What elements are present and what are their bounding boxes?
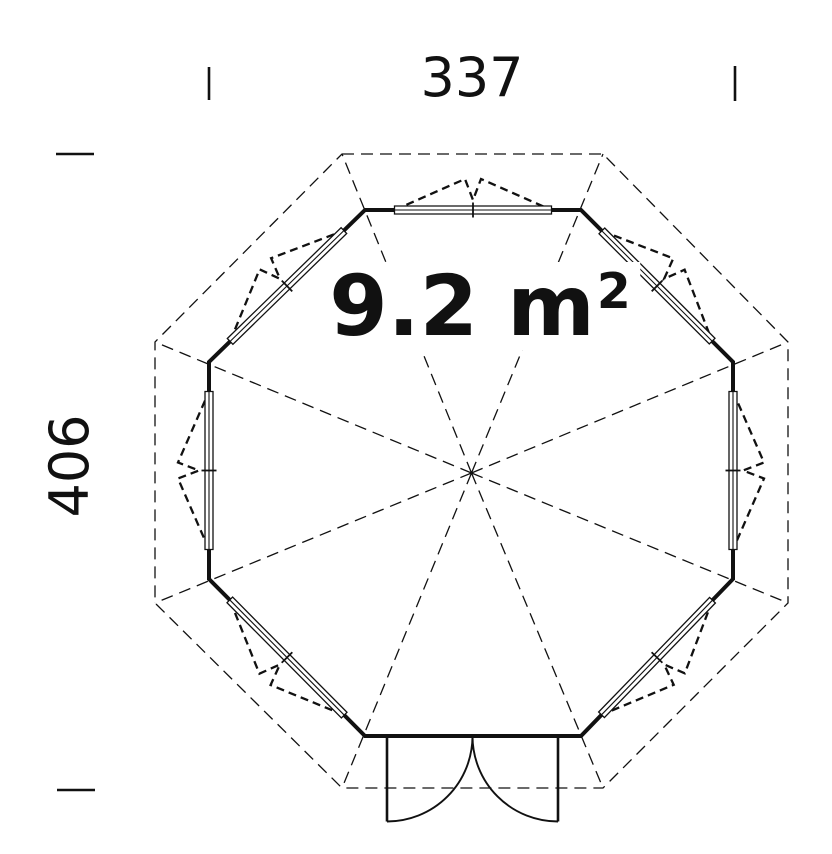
- floor-area-exponent: 2: [597, 264, 631, 320]
- door-swing-arc: [387, 736, 473, 822]
- window-top: [395, 179, 552, 218]
- window-south-west: [227, 597, 347, 718]
- dimension-height-label: 406: [43, 414, 97, 517]
- window-right: [726, 392, 765, 550]
- double-door: [387, 736, 558, 822]
- roof-hip-line: [472, 473, 789, 603]
- roof-hip-lines: [155, 154, 788, 788]
- floor-plan-canvas: 337 406 9.2 m2: [0, 0, 832, 854]
- roof-hip-line: [155, 473, 472, 603]
- window-south-east: [599, 597, 716, 717]
- roof-hip-line: [472, 473, 604, 788]
- floor-area-label: 9.2 m2: [319, 262, 640, 350]
- floor-area-value: 9.2 m: [329, 257, 595, 355]
- window-left: [178, 392, 217, 550]
- floor-plan-drawing: [0, 0, 832, 854]
- dimension-width-label: 337: [420, 51, 523, 105]
- door-swing-arc: [473, 736, 559, 822]
- roof-hip-line: [342, 473, 472, 788]
- roof-outline: [155, 154, 788, 788]
